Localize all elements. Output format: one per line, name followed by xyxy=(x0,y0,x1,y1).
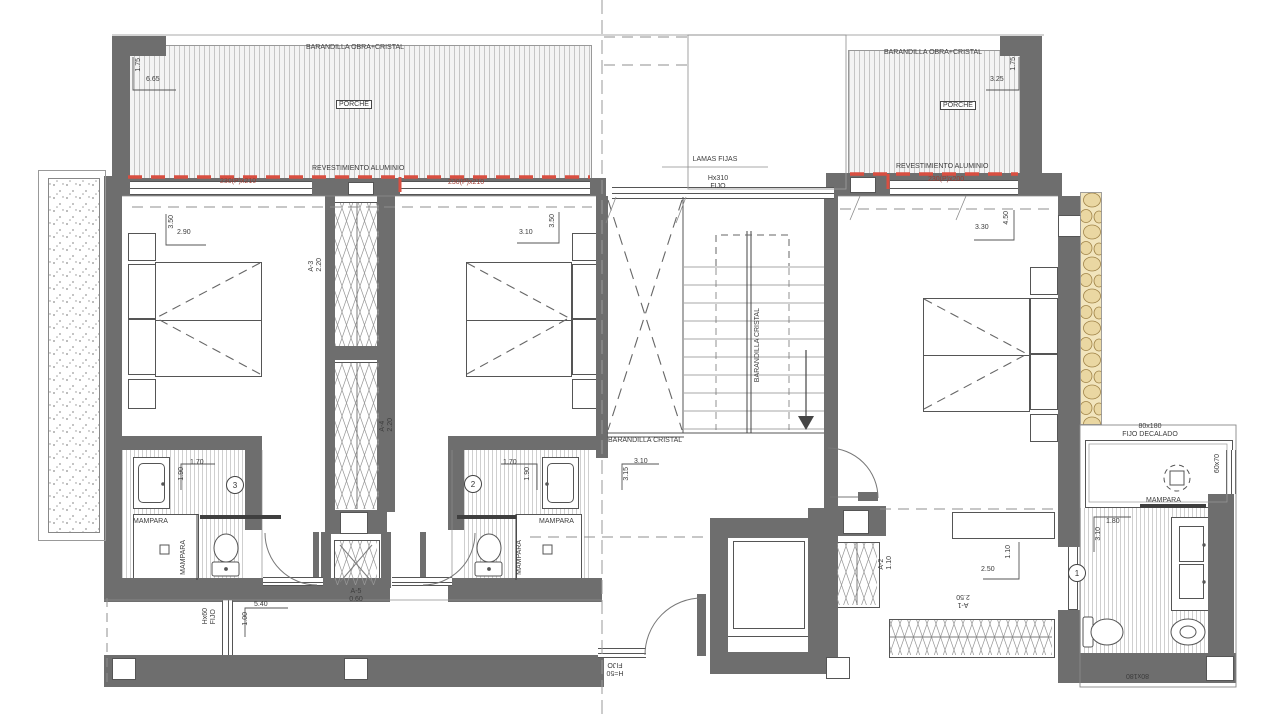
window xyxy=(1058,215,1082,237)
window-height: Hx60 xyxy=(202,608,210,624)
room-number-3: 3 xyxy=(226,476,244,494)
nightstand xyxy=(1030,414,1058,442)
room-number-2: 2 xyxy=(464,475,482,493)
porch-right-decking xyxy=(848,50,1022,177)
stairs xyxy=(607,197,824,437)
entry-window-label: H=50 FIJO xyxy=(600,660,630,676)
room-number-1: 1 xyxy=(1068,564,1086,582)
sink-basin xyxy=(1179,526,1204,562)
porch-left-label: PORCHE xyxy=(336,101,372,109)
sink-basin xyxy=(1179,564,1204,599)
wall-segment xyxy=(824,196,838,512)
wall-segment xyxy=(122,436,245,450)
window-type: FIJO DECALADO xyxy=(1100,431,1200,439)
closet-size: 2.50 xyxy=(948,592,978,600)
pillow xyxy=(1030,354,1058,410)
double-bed xyxy=(155,262,262,377)
double-bed xyxy=(466,262,572,377)
nightstand xyxy=(1030,267,1058,295)
closet-size: 2.20 xyxy=(316,258,324,272)
wall-segment xyxy=(448,578,602,602)
wall-segment xyxy=(828,500,838,674)
window-size-label: 80x180 xyxy=(1126,671,1149,679)
closet-a3-label: A-3 2.20 xyxy=(308,258,324,272)
nightstand xyxy=(128,379,156,409)
screen-label: MAMPARA xyxy=(539,518,574,526)
dim-label: 1.70 xyxy=(503,459,517,467)
porch-right-cladding-label: REVESTIMIENTO ALUMINIO xyxy=(896,163,988,171)
wall-segment xyxy=(112,36,166,56)
window xyxy=(400,181,590,195)
dim-label: 1.00 xyxy=(242,612,250,626)
dim-label: 3.25 xyxy=(990,76,1004,84)
window xyxy=(1226,450,1236,494)
window-size: 80x180 xyxy=(1100,423,1200,431)
pillow xyxy=(128,264,156,319)
closet-code: A-1 xyxy=(948,600,978,608)
void-railing-label: BARANDILLA CRISTAL xyxy=(608,437,682,445)
closet-a4 xyxy=(334,362,382,512)
wall-segment xyxy=(596,196,608,458)
stone-wall xyxy=(1081,193,1102,425)
column xyxy=(843,510,869,534)
double-bed xyxy=(923,298,1030,412)
dim-label: 1.10 xyxy=(1005,545,1013,559)
closet-code: A-3 xyxy=(308,258,316,272)
column xyxy=(340,512,368,534)
wall-segment xyxy=(1058,235,1080,547)
dim-label: 2.50 xyxy=(981,566,995,574)
closet-code: A-4 xyxy=(379,418,387,432)
planter xyxy=(39,171,106,541)
column xyxy=(1206,656,1234,681)
door-size-label: 230(P)x210 xyxy=(220,178,256,186)
dim-label: 3.50 xyxy=(549,214,557,228)
porch-left-cladding-label: REVESTIMIENTO ALUMINIO xyxy=(312,165,404,173)
elevator-wall xyxy=(710,652,828,674)
porch-right-label: PORCHE xyxy=(940,102,976,110)
closet-size: 0.60 xyxy=(336,596,376,604)
dim-label: 1.70 xyxy=(190,459,204,467)
dim-label: 3.10 xyxy=(1095,527,1103,541)
door-size-label: 230(P)x210 xyxy=(448,179,484,187)
elevator-cabin xyxy=(733,541,805,629)
dim-label: 3.50 xyxy=(168,215,176,229)
window-size-label: 60x70 xyxy=(1214,454,1222,473)
screen-label: MAMPARA xyxy=(516,540,524,575)
counter xyxy=(952,512,1055,539)
dim-label: 1.90 xyxy=(178,467,186,481)
closet-size: 2.20 xyxy=(387,418,395,432)
louvers-label: LAMAS FIJAS xyxy=(670,156,760,164)
threshold xyxy=(392,577,452,586)
screen-label: MAMPARA xyxy=(1146,497,1181,505)
pillow xyxy=(1030,298,1058,354)
screen-label: MAMPARA xyxy=(180,540,188,575)
closet-a4-label: A-4 2.20 xyxy=(379,418,395,432)
sink-basin xyxy=(138,463,165,503)
closet-code: A-5 xyxy=(336,588,376,596)
column xyxy=(112,658,136,680)
porch-left-decking xyxy=(128,45,592,180)
screen-label: MAMPARA xyxy=(133,518,168,526)
closet-a3 xyxy=(334,202,382,349)
nightstand xyxy=(128,233,156,261)
stair-railing-label: BARANDILLA CRISTAL xyxy=(754,308,762,382)
pillow xyxy=(128,319,156,375)
dim-label: 1.80 xyxy=(1106,518,1120,526)
dim-label: 3.15 xyxy=(623,467,631,481)
elevator-wall xyxy=(710,518,728,674)
closet-a2 xyxy=(836,542,880,608)
dim-label: 1.90 xyxy=(524,467,532,481)
dim-label: 6.65 xyxy=(146,76,160,84)
threshold xyxy=(263,577,323,586)
window-type: FIJO xyxy=(210,608,218,624)
wall-segment xyxy=(245,436,262,530)
wall-segment xyxy=(1058,610,1080,658)
door-size-label: 230(P)x200 xyxy=(928,176,964,184)
window-height: H=50 xyxy=(600,668,630,676)
dim-label: 5.40 xyxy=(254,601,268,609)
dim-label: 4.50 xyxy=(1003,211,1011,225)
porch-left-railing-label: BARANDILLA OBRA+CRISTAL xyxy=(245,44,465,52)
closet-a5-label: A-5 0.60 xyxy=(336,588,376,604)
closet-code: A-2 xyxy=(878,556,886,570)
void-x xyxy=(608,200,682,430)
dim-label: 1.75 xyxy=(1010,57,1018,71)
closet-size: 1.10 xyxy=(886,556,894,570)
wall-segment xyxy=(112,36,130,182)
dim-label: 1.75 xyxy=(135,58,143,72)
dim-label: 3.10 xyxy=(634,458,648,466)
column xyxy=(344,658,368,680)
dim-label: 2.90 xyxy=(177,229,191,237)
terrace-window-label: Hx60 FIJO xyxy=(202,608,218,624)
column xyxy=(850,177,876,193)
closet-a1-label: A-1 2.50 xyxy=(948,592,978,608)
window-type: FIJO xyxy=(600,660,630,668)
window-height: Hx310 xyxy=(698,175,738,183)
window-type: FIJO xyxy=(698,183,738,191)
wall-segment xyxy=(1058,196,1080,215)
closet-a2-label: A-2 1.10 xyxy=(878,556,894,570)
window-label: Hx310 FIJO xyxy=(698,175,738,191)
wall-segment xyxy=(325,346,395,360)
wall-segment xyxy=(452,436,602,450)
floor-plan: BARANDILLA OBRA+CRISTAL PORCHE REVESTIMI… xyxy=(0,0,1280,717)
shower-window-label: 80x180 FIJO DECALADO xyxy=(1100,423,1200,439)
closet-hatch xyxy=(335,203,1052,655)
closet-a1 xyxy=(889,619,1055,658)
wall-segment xyxy=(104,176,122,602)
wall-segment xyxy=(448,436,464,530)
door-leaf xyxy=(858,492,878,501)
column xyxy=(826,657,850,679)
dim-label: 3.30 xyxy=(975,224,989,232)
elevator-wall xyxy=(808,508,828,674)
window xyxy=(598,648,646,658)
wall-segment xyxy=(1020,36,1042,176)
closet-rails xyxy=(340,203,1052,637)
window xyxy=(222,600,233,655)
wall-segment xyxy=(1208,494,1234,658)
dim-label: 3.10 xyxy=(519,229,533,237)
door-leaf xyxy=(697,594,706,656)
column xyxy=(348,182,374,195)
porch-right-railing-label: BARANDILLA OBRA+CRISTAL xyxy=(858,49,1008,57)
sink-basin xyxy=(547,463,574,503)
